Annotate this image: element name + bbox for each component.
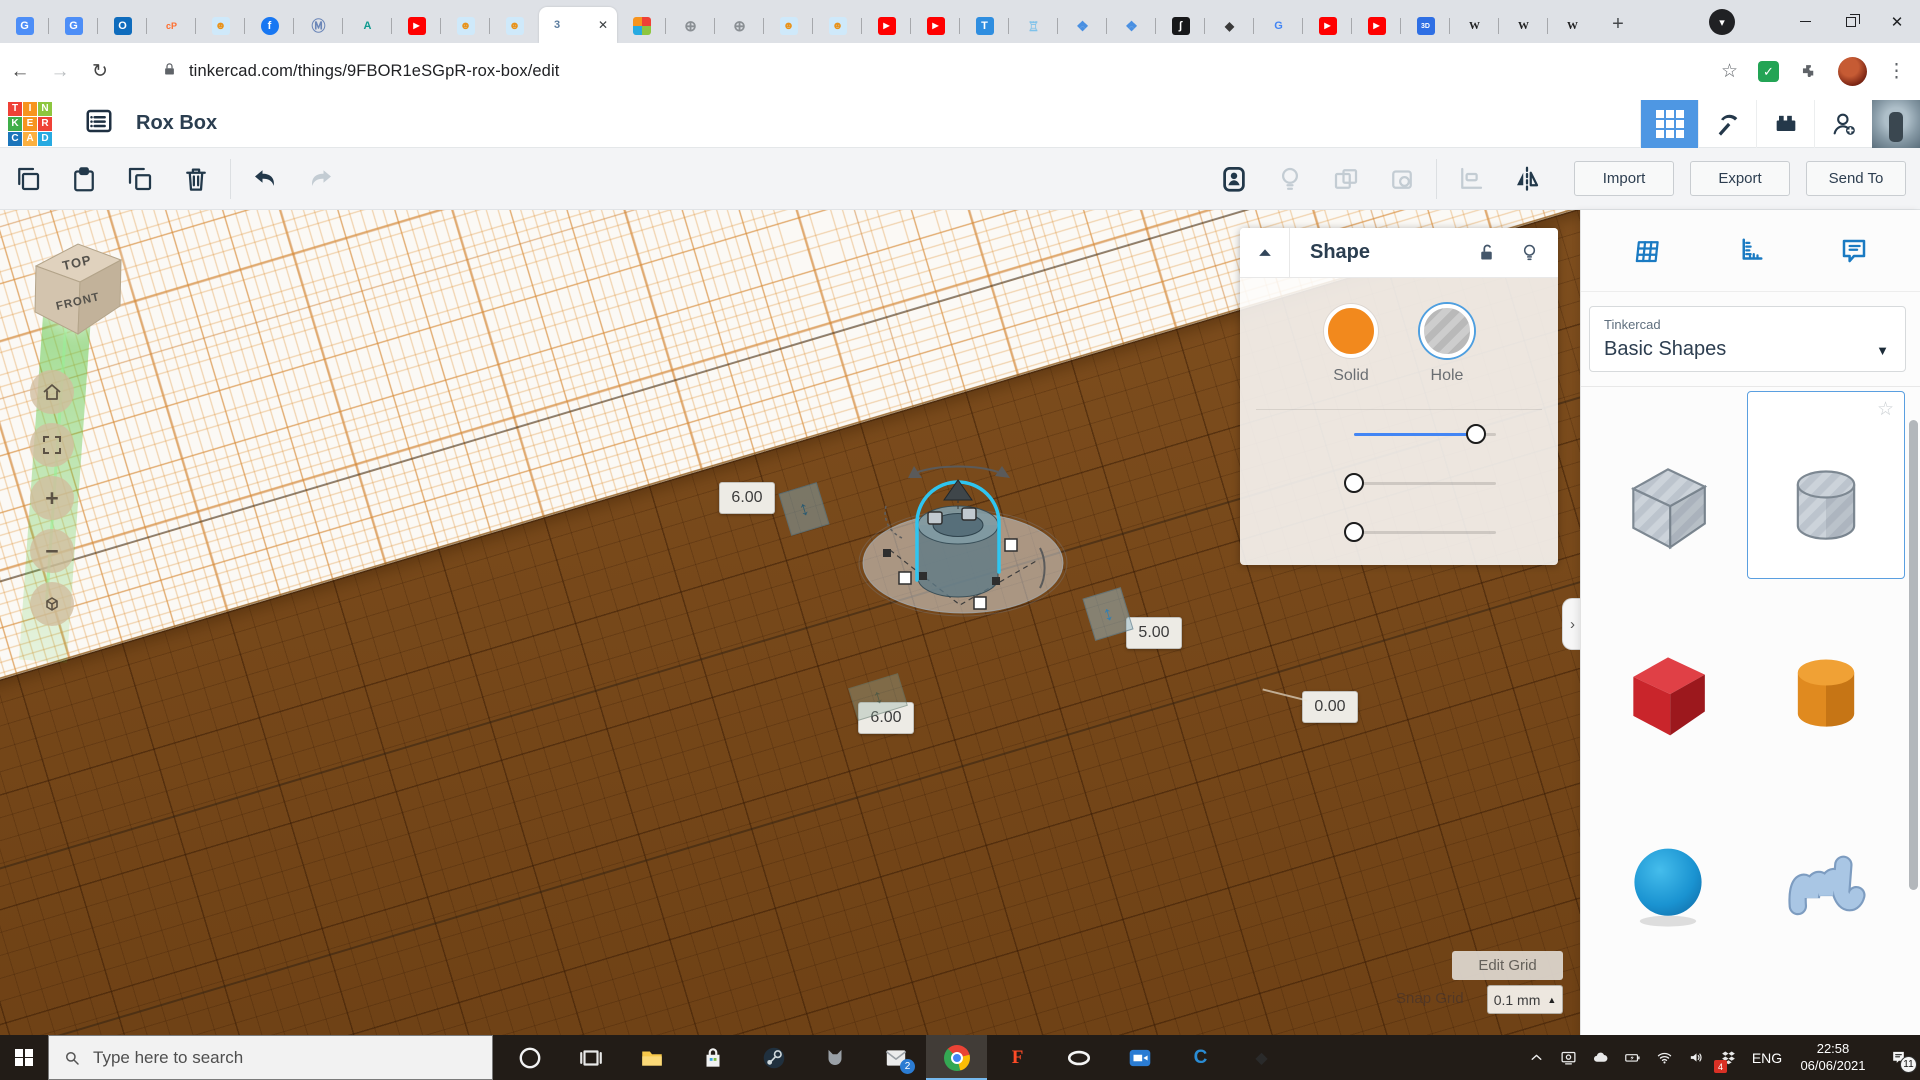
user-avatar[interactable]	[1872, 100, 1920, 148]
slider-track[interactable]	[1354, 531, 1496, 534]
logo-letter: I	[23, 102, 37, 116]
logo-letter: A	[23, 132, 37, 146]
slider-handle[interactable]	[1344, 473, 1364, 493]
active-tab-favicon: 3	[548, 16, 566, 34]
tab-inkscape[interactable]: ◆	[1205, 9, 1254, 43]
sidebar-collapse-handle[interactable]: ›	[1562, 598, 1580, 650]
slider-row-bevel	[1240, 459, 1558, 508]
extension-check-icon[interactable]: ✓	[1758, 61, 1779, 82]
align-icon[interactable]	[1443, 148, 1499, 210]
send-to-button[interactable]: Send To	[1806, 161, 1906, 196]
tab-m-hexagon[interactable]: Ⓜ	[294, 9, 343, 43]
inkscape-app-button[interactable]: ◆	[1231, 1035, 1292, 1080]
tab-youtube[interactable]: ▶	[392, 9, 441, 43]
youtube-favicon: ▶	[878, 17, 896, 35]
thingiverse-favicon: T	[976, 17, 994, 35]
wifi-icon[interactable]	[1648, 1035, 1680, 1080]
hole-swatch[interactable]	[1420, 304, 1474, 358]
layers-favicon: ❖	[1123, 17, 1141, 35]
top-handle[interactable]	[962, 508, 976, 520]
tab-avatar-orange[interactable]: ☻	[441, 9, 490, 43]
tab-wikipedia[interactable]: W	[1450, 9, 1499, 43]
zoom-out-button[interactable]: −	[30, 529, 74, 573]
home-view-button[interactable]	[30, 370, 74, 414]
action-center-button[interactable]: 11	[1876, 1035, 1920, 1080]
clock[interactable]: 22:5806/06/2021	[1790, 1041, 1876, 1075]
collapse-panel-button[interactable]	[1240, 228, 1290, 278]
browser-tab-strip: GGOcP☻fⓂA▶☻☻ 3 ✕ ⊕⊕☻☻▶▶T♖❖❖ʃ◆G▶▶3DWWW + …	[0, 0, 1920, 43]
solid-swatch[interactable]	[1324, 304, 1378, 358]
slider-row-segments	[1240, 508, 1558, 557]
tab-globe[interactable]: ⊕	[666, 9, 715, 43]
3d-viewport[interactable]: TOP FRONT + −	[0, 210, 1580, 1080]
autodesk-favicon: A	[359, 17, 377, 35]
zoom-in-button[interactable]: +	[30, 476, 74, 520]
shape-tile-cylinder-striped-cylinder[interactable]: ☆	[1747, 391, 1905, 579]
file-explorer-button[interactable]	[621, 1035, 682, 1080]
logo-letter: T	[8, 102, 22, 116]
minimize-button[interactable]	[1782, 0, 1828, 43]
notification-count: 11	[1900, 1056, 1917, 1073]
avatar-orange-favicon: ☻	[457, 17, 475, 35]
pinned-tabs-right: ⊕⊕☻☻▶▶T♖❖❖ʃ◆G▶▶3DWWW	[617, 0, 1597, 43]
cast-icon[interactable]	[1552, 1035, 1584, 1080]
youtube-favicon: ▶	[1368, 17, 1386, 35]
slider-handle[interactable]	[1344, 522, 1364, 542]
tab-youtube[interactable]: ▶	[1303, 9, 1352, 43]
lightbulb-icon[interactable]	[1519, 242, 1540, 263]
undo-icon[interactable]	[237, 148, 293, 210]
url-bar: ← → ↻ tinkercad.com/things/9FBOR1eSGpR-r…	[0, 43, 1920, 100]
google-translate-favicon: G	[65, 17, 83, 35]
shape-inspector-panel: Shape Solid Hole	[1240, 228, 1558, 565]
steam-button[interactable]	[743, 1035, 804, 1080]
slider-track[interactable]	[1354, 482, 1496, 485]
tab-layers[interactable]: ❖	[1058, 9, 1107, 43]
tinkercad-logo[interactable]: TINKERCAD	[8, 102, 52, 146]
favorite-star-icon[interactable]: ☆	[1877, 398, 1894, 421]
jotform-favicon: ʃ	[1172, 17, 1190, 35]
dashboard-grid-button[interactable]	[1640, 100, 1698, 148]
search-placeholder: Type here to search	[93, 1048, 243, 1068]
import-button[interactable]: Import	[1574, 161, 1674, 196]
logo-letter: N	[38, 102, 52, 116]
refresh-button[interactable]: ↻	[80, 60, 120, 83]
panel-title: Shape	[1310, 241, 1370, 264]
notes-tool[interactable]	[1839, 236, 1869, 277]
tab-layers[interactable]: ❖	[1107, 9, 1156, 43]
taskbar-search[interactable]: Type here to search	[48, 1035, 493, 1080]
collection-kicker: Tinkercad	[1604, 317, 1891, 332]
hole-option[interactable]: Hole	[1420, 304, 1474, 385]
shapes-sidebar: Tinkercad Basic Shapes ▼ ☆	[1580, 210, 1920, 1080]
group-icon[interactable]	[1318, 148, 1374, 210]
tab-avatar-orange[interactable]: ☻	[196, 9, 245, 43]
shape-tile-box-striped-box[interactable]	[1589, 391, 1747, 579]
inkscape-favicon: ◆	[1221, 17, 1239, 35]
logo-letter: K	[8, 117, 22, 131]
restore-button[interactable]	[1828, 0, 1874, 43]
scale-handle[interactable]	[974, 597, 986, 609]
logo-letter: R	[38, 117, 52, 131]
tab-avatar-orange[interactable]: ☻	[813, 9, 862, 43]
youtube-favicon: ▶	[1319, 17, 1337, 35]
app-header: TINKERCAD Rox Box	[0, 100, 1920, 148]
paste-icon[interactable]	[56, 148, 112, 210]
slider-track[interactable]	[1354, 433, 1496, 436]
chevron-down-icon: ▼	[1876, 343, 1889, 358]
tab-globe[interactable]: ⊕	[715, 9, 764, 43]
tray-expand-button[interactable]	[1520, 1035, 1552, 1080]
duplicate-icon[interactable]	[112, 148, 168, 210]
tab-wikipedia[interactable]: W	[1548, 9, 1597, 43]
tab-3d-viewer[interactable]: 3D	[1401, 9, 1450, 43]
flip-icon[interactable]	[1499, 148, 1555, 210]
tab-jotform[interactable]: ʃ	[1156, 9, 1205, 43]
design-title[interactable]: Rox Box	[136, 112, 217, 135]
avatar-orange-favicon: ☻	[506, 17, 524, 35]
new-tab-button[interactable]: +	[1603, 9, 1633, 39]
tab-youtube[interactable]: ▶	[1352, 9, 1401, 43]
tab-google-translate[interactable]: G	[0, 9, 49, 43]
solid-label: Solid	[1324, 367, 1378, 385]
delete-icon[interactable]	[168, 148, 224, 210]
wikipedia-favicon: W	[1466, 17, 1484, 35]
slider-handle[interactable]	[1466, 424, 1486, 444]
chrome-button[interactable]	[926, 1035, 987, 1080]
microsoft-store-button[interactable]	[682, 1035, 743, 1080]
tab-tinkercad[interactable]	[617, 9, 666, 43]
edge-handle[interactable]	[883, 549, 891, 557]
avatar-orange-favicon: ☻	[780, 17, 798, 35]
tab-youtube[interactable]: ▶	[911, 9, 960, 43]
date: 06/06/2021	[1790, 1058, 1876, 1075]
copy-icon[interactable]	[0, 148, 56, 210]
tab-wikipedia[interactable]: W	[1499, 9, 1548, 43]
cpanel-favicon: cP	[163, 17, 181, 35]
collection-name: Basic Shapes	[1604, 338, 1891, 361]
avatar-orange-favicon: ☻	[212, 17, 230, 35]
tab-autodesk[interactable]: A	[343, 9, 392, 43]
google-favicon: G	[1270, 17, 1288, 35]
tinkercad-favicon	[633, 17, 651, 35]
tab-avatar-orange[interactable]: ☻	[490, 9, 539, 43]
language-indicator[interactable]: ENG	[1744, 1050, 1790, 1066]
pinned-tabs-left: GGOcP☻fⓂA▶☻☻	[0, 0, 539, 43]
edge-handle[interactable]	[992, 577, 1000, 585]
browser-menu-icon[interactable]: ⋮	[1887, 60, 1906, 83]
workplane-view-button[interactable]	[30, 582, 74, 626]
battery-icon[interactable]	[1616, 1035, 1648, 1080]
top-handle[interactable]	[928, 512, 942, 524]
edge-handle[interactable]	[919, 572, 927, 580]
robot-favicon: ♖	[1025, 17, 1043, 35]
game-app-button[interactable]	[804, 1035, 865, 1080]
wikipedia-favicon: W	[1564, 17, 1582, 35]
ungroup-icon[interactable]	[1374, 148, 1430, 210]
tab-google-translate[interactable]: G	[49, 9, 98, 43]
dimension-label[interactable]: 6.00	[719, 482, 775, 514]
edit-toolbar: Import Export Send To	[0, 148, 1920, 210]
close-tab-icon[interactable]: ✕	[598, 18, 608, 32]
close-window-button[interactable]: ✕	[1874, 0, 1920, 43]
hidden-objects-icon[interactable]	[1262, 148, 1318, 210]
tab-thingiverse[interactable]: T	[960, 9, 1009, 43]
solid-option[interactable]: Solid	[1324, 304, 1378, 385]
dimension-label[interactable]: 5.00	[1126, 617, 1182, 649]
hole-label: Hole	[1420, 367, 1474, 385]
shape-tile-cylinder-orange-cylinder[interactable]	[1747, 579, 1905, 767]
shape-tile-box-red-box[interactable]	[1589, 579, 1747, 767]
brick-button[interactable]	[1756, 100, 1814, 148]
tab-robot[interactable]: ♖	[1009, 9, 1058, 43]
forward-button[interactable]: →	[40, 61, 80, 83]
shape-tile-scribble-scribble[interactable]	[1747, 767, 1905, 955]
layers-favicon: ❖	[1074, 17, 1092, 35]
logo-letter: E	[23, 117, 37, 131]
invite-person-button[interactable]	[1814, 100, 1872, 148]
oculus-button[interactable]	[1048, 1035, 1109, 1080]
window-controls: ✕	[1782, 0, 1920, 43]
tab-cpanel[interactable]: cP	[147, 9, 196, 43]
search-icon	[63, 1049, 81, 1067]
cortana-button[interactable]	[499, 1035, 560, 1080]
3d-viewer-favicon: 3D	[1417, 17, 1435, 35]
globe-favicon: ⊕	[682, 17, 700, 35]
logo-letter: C	[8, 132, 22, 146]
f-app-button[interactable]: F	[987, 1035, 1048, 1080]
google-translate-favicon: G	[16, 17, 34, 35]
task-view-button[interactable]	[560, 1035, 621, 1080]
logo-letter: D	[38, 132, 52, 146]
tab-search-button[interactable]: ▾	[1709, 9, 1735, 35]
onedrive-icon[interactable]	[1584, 1035, 1616, 1080]
scale-handle[interactable]	[899, 572, 911, 584]
ruler-tool[interactable]	[1735, 236, 1765, 277]
snap-grid-dropdown[interactable]: 0.1 mm▲	[1487, 985, 1563, 1014]
edit-grid-button[interactable]: Edit Grid	[1452, 951, 1563, 980]
tab-youtube[interactable]: ▶	[862, 9, 911, 43]
shape-collection-dropdown[interactable]: Tinkercad Basic Shapes ▼	[1589, 306, 1906, 372]
start-button[interactable]	[0, 1035, 48, 1080]
outlook-favicon: O	[114, 17, 132, 35]
youtube-favicon: ▶	[927, 17, 945, 35]
url-text[interactable]: tinkercad.com/things/9FBOR1eSGpR-rox-box…	[189, 62, 559, 81]
tab-outlook[interactable]: O	[98, 9, 147, 43]
wikipedia-favicon: W	[1515, 17, 1533, 35]
dimension-label[interactable]: 0.00	[1302, 691, 1358, 723]
mail-button[interactable]: 2	[865, 1035, 926, 1080]
snap-grid-label: Snap Grid	[1396, 990, 1464, 1007]
design-menu-icon[interactable]	[84, 106, 114, 141]
time: 22:58	[1790, 1041, 1876, 1058]
view-cube[interactable]: TOP FRONT	[28, 234, 132, 346]
active-tab[interactable]: 3 ✕	[539, 7, 617, 43]
avatar-orange-favicon: ☻	[829, 17, 847, 35]
tab-avatar-orange[interactable]: ☻	[764, 9, 813, 43]
minecraft-pickaxe-button[interactable]	[1698, 100, 1756, 148]
export-button[interactable]: Export	[1690, 161, 1790, 196]
scale-handle[interactable]	[1005, 539, 1017, 551]
redo-icon[interactable]	[293, 148, 349, 210]
shape-tile-sphere-sphere[interactable]	[1589, 767, 1747, 955]
globe-favicon: ⊕	[731, 17, 749, 35]
sidebar-scrollbar[interactable]	[1909, 420, 1918, 890]
extensions-puzzle-icon[interactable]	[1799, 62, 1818, 81]
fit-view-button[interactable]	[30, 423, 74, 467]
bookmark-star-icon[interactable]: ☆	[1721, 60, 1738, 83]
volume-icon[interactable]	[1680, 1035, 1712, 1080]
unlock-icon[interactable]	[1476, 242, 1497, 263]
show-all-icon[interactable]	[1206, 148, 1262, 210]
dropbox-icon[interactable]: 4	[1712, 1035, 1744, 1080]
windows-taskbar: Type here to search 2FC◆ 4ENG22:5806/06/…	[0, 1035, 1920, 1080]
m-hexagon-favicon: Ⓜ	[310, 17, 328, 35]
tab-facebook[interactable]: f	[245, 9, 294, 43]
workplane-tool[interactable]	[1632, 236, 1662, 277]
screen: GGOcP☻fⓂA▶☻☻ 3 ✕ ⊕⊕☻☻▶▶T♖❖❖ʃ◆G▶▶3DWWW + …	[0, 0, 1920, 1080]
c-app-button[interactable]: C	[1170, 1035, 1231, 1080]
facebook-favicon: f	[261, 17, 279, 35]
movies-app-button[interactable]	[1109, 1035, 1170, 1080]
secure-padlock-icon[interactable]	[162, 62, 177, 82]
slider-row-sides	[1240, 410, 1558, 459]
badge: 2	[900, 1059, 915, 1074]
tab-google[interactable]: G	[1254, 9, 1303, 43]
browser-profile-avatar[interactable]	[1838, 57, 1867, 86]
back-button[interactable]: ←	[0, 61, 40, 83]
youtube-favicon: ▶	[408, 17, 426, 35]
